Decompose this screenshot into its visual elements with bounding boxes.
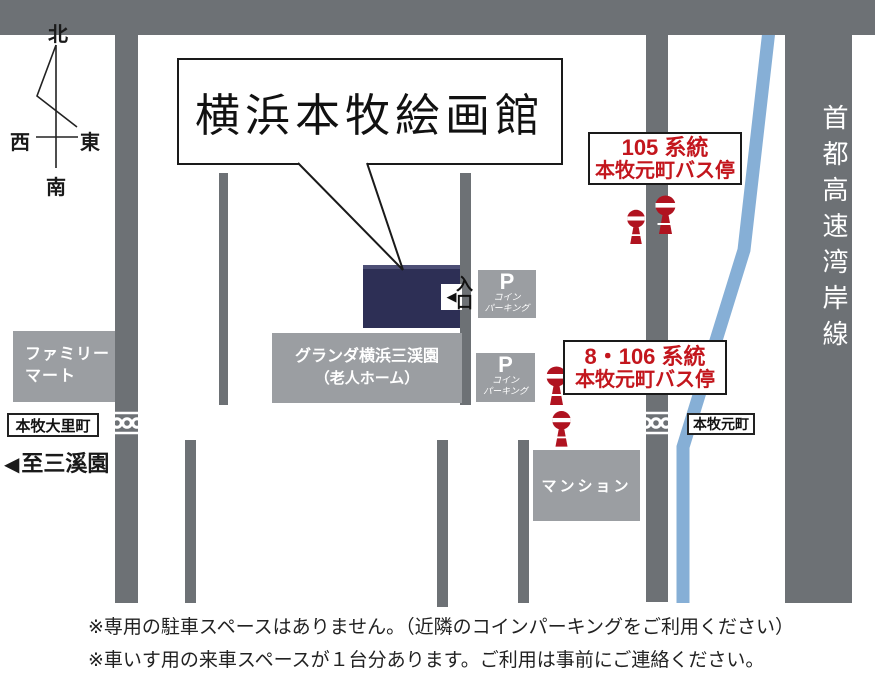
compass-icon <box>20 12 115 192</box>
access-map: 八王子道路 首都高速湾岸線 本牧大里町 本牧元町 ◀至三溪園 ファミリー マート… <box>0 0 875 686</box>
map-title: 横浜本牧絵画館 <box>177 58 563 165</box>
parking-p-icon: P <box>476 353 535 375</box>
building-granda-sankeien: グランダ横浜三渓園 （老人ホーム） <box>272 333 462 403</box>
coin-parking-south: P コイン パーキング <box>476 353 535 402</box>
road-label-highway: 首都高速湾岸線 <box>785 90 852 370</box>
bus-stop-icon <box>624 209 648 247</box>
left-arrow-icon: ◀ <box>4 454 19 476</box>
building-mansion: マンション <box>533 450 640 521</box>
road-narrow-lower-mid <box>437 440 448 607</box>
parking-note: ※専用の駐車スペースはありません。（近隣のコインパーキングをご利用ください） <box>88 612 794 639</box>
bus-stop-label-route8-106: 8・106 系統 本牧元町バス停 <box>563 340 727 395</box>
parking-p-icon: P <box>478 270 536 292</box>
intersection-label-honmoku-motomachi: 本牧元町 <box>687 413 755 435</box>
bus-stop-icon <box>652 195 679 237</box>
road-bus-route <box>646 0 668 602</box>
wheelchair-note: ※車いす用の来車スペースが１台分あります。ご利用は事前にご連絡ください。 <box>88 645 764 672</box>
intersection-label-honmoku-osato: 本牧大里町 <box>7 413 99 437</box>
traffic-light-icon <box>104 411 150 435</box>
road-label-hachioji: 八王子道路 <box>214 410 374 440</box>
to-sankeien-label: ◀至三溪園 <box>4 446 109 478</box>
bus-stop-label-route105: 105 系統 本牧元町バス停 <box>588 132 742 185</box>
traffic-light-icon <box>633 411 679 435</box>
bus-stop-icon <box>549 410 574 450</box>
coin-parking-north: P コイン パーキング <box>478 270 536 318</box>
road-west-vertical <box>115 0 138 603</box>
building-familymart: ファミリー マート <box>13 331 115 402</box>
road-narrow-upper-left <box>219 173 228 405</box>
road-narrow-lower-left <box>185 440 196 603</box>
road-narrow-lower-right <box>518 440 529 603</box>
entrance-label: 入口 <box>454 275 471 311</box>
